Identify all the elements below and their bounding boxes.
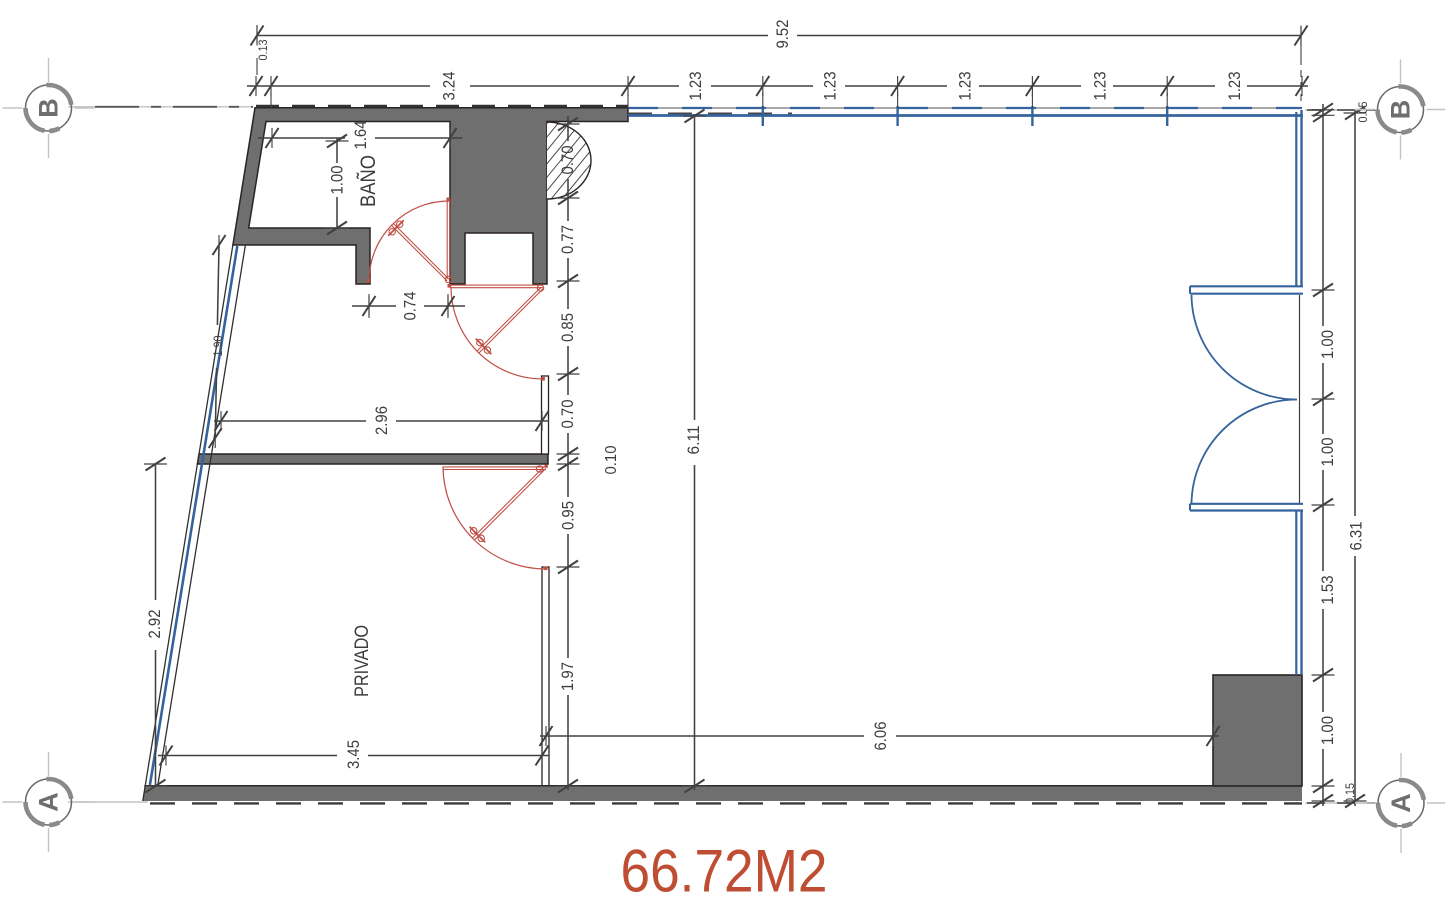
svg-text:0.85: 0.85 bbox=[558, 313, 577, 342]
svg-text:1.53: 1.53 bbox=[1318, 576, 1337, 605]
svg-text:1.23: 1.23 bbox=[1090, 72, 1109, 101]
svg-text:66.72M2: 66.72M2 bbox=[621, 838, 828, 905]
svg-text:B: B bbox=[1386, 100, 1416, 120]
svg-text:1.97: 1.97 bbox=[558, 662, 577, 691]
svg-text:1.23: 1.23 bbox=[956, 72, 975, 101]
svg-text:0.70: 0.70 bbox=[558, 146, 577, 175]
svg-text:6.06: 6.06 bbox=[871, 722, 890, 751]
svg-text:9.52: 9.52 bbox=[773, 20, 792, 49]
svg-text:0.13: 0.13 bbox=[256, 39, 270, 60]
svg-text:B: B bbox=[34, 98, 64, 118]
svg-text:6.31: 6.31 bbox=[1347, 522, 1366, 551]
svg-text:1.00: 1.00 bbox=[1318, 438, 1337, 467]
svg-text:0.77: 0.77 bbox=[558, 225, 577, 254]
svg-text:6.11: 6.11 bbox=[684, 426, 703, 455]
svg-text:A: A bbox=[1386, 793, 1416, 813]
svg-text:1.90: 1.90 bbox=[211, 335, 225, 356]
svg-text:0.70: 0.70 bbox=[558, 400, 577, 429]
svg-text:0.74: 0.74 bbox=[401, 292, 420, 321]
svg-text:3.24: 3.24 bbox=[440, 72, 459, 101]
svg-text:3.45: 3.45 bbox=[344, 740, 363, 769]
svg-text:0.10: 0.10 bbox=[603, 445, 620, 474]
svg-text:1.23: 1.23 bbox=[1225, 72, 1244, 101]
svg-text:0.95: 0.95 bbox=[559, 501, 578, 530]
svg-text:PRIVADO: PRIVADO bbox=[352, 625, 373, 697]
svg-text:1.23: 1.23 bbox=[686, 72, 705, 101]
svg-text:2.92: 2.92 bbox=[145, 610, 164, 639]
svg-text:1.64: 1.64 bbox=[351, 121, 370, 150]
svg-text:BAÑO: BAÑO bbox=[356, 155, 380, 207]
svg-text:2.96: 2.96 bbox=[372, 406, 391, 435]
svg-text:1.00: 1.00 bbox=[328, 166, 347, 195]
svg-text:A: A bbox=[34, 792, 64, 812]
svg-text:1.00: 1.00 bbox=[1318, 330, 1337, 359]
svg-text:1.23: 1.23 bbox=[821, 72, 840, 101]
svg-text:1.00: 1.00 bbox=[1318, 716, 1337, 745]
